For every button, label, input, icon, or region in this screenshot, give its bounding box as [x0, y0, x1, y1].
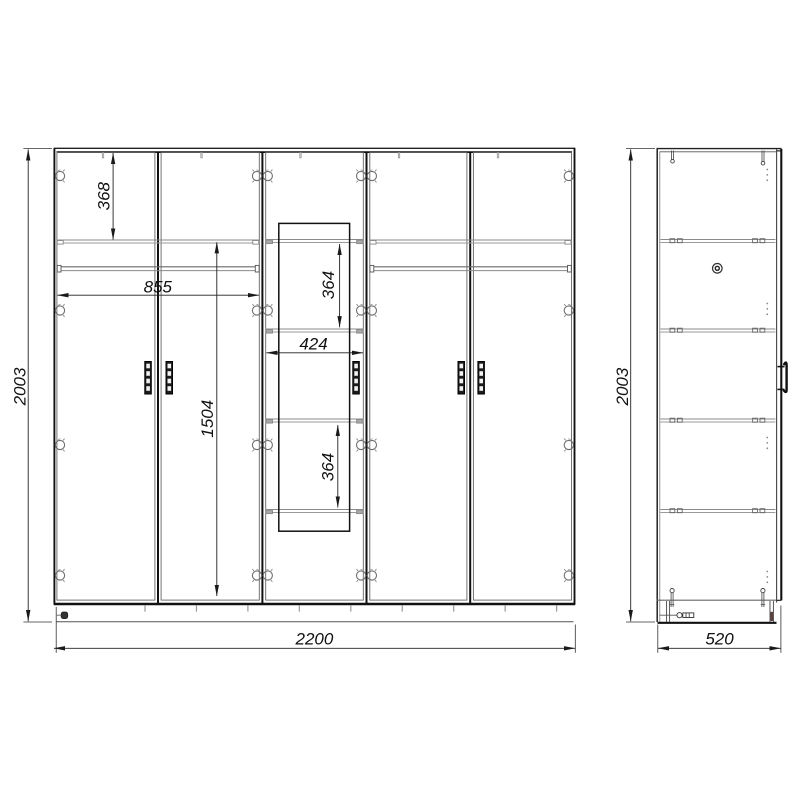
svg-text:2200: 2200 — [294, 629, 333, 648]
svg-text:2003: 2003 — [10, 367, 29, 406]
svg-text:1504: 1504 — [198, 400, 217, 438]
svg-text:364: 364 — [319, 453, 338, 481]
svg-text:364: 364 — [319, 271, 338, 299]
svg-text:520: 520 — [705, 629, 734, 648]
svg-text:2003: 2003 — [613, 367, 632, 406]
svg-text:424: 424 — [299, 335, 327, 354]
svg-text:368: 368 — [95, 181, 114, 210]
svg-text:855: 855 — [144, 277, 173, 296]
